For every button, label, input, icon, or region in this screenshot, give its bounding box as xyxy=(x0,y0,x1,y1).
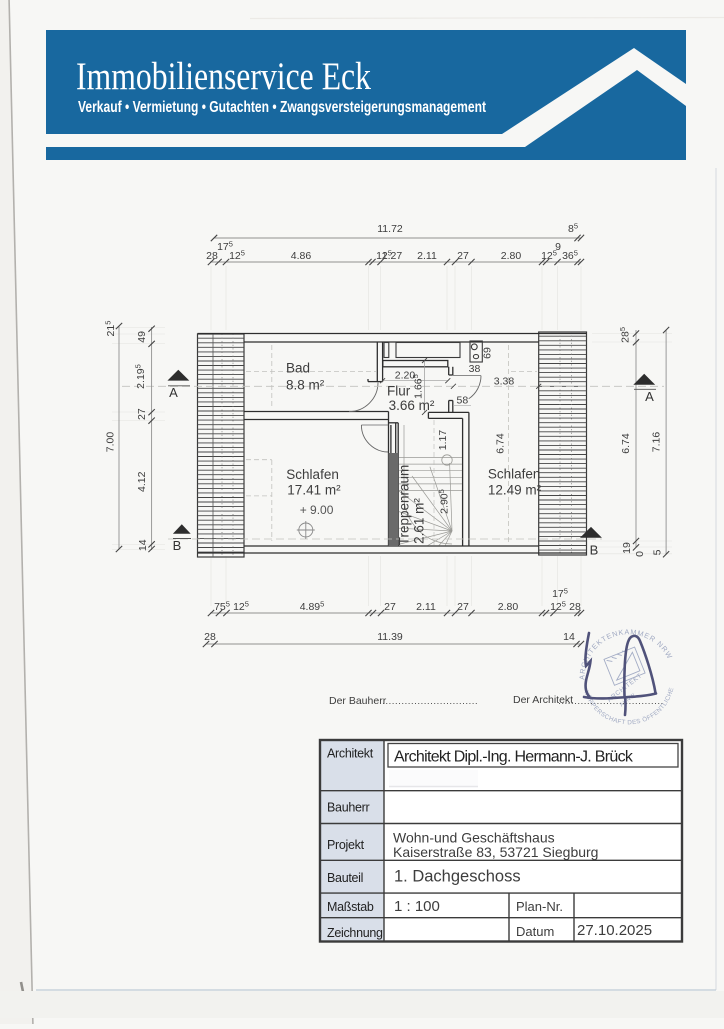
svg-text:Zeichnung: Zeichnung xyxy=(327,926,383,940)
svg-text:Flur: Flur xyxy=(387,383,411,398)
svg-text:Immobilienservice Eck: Immobilienservice Eck xyxy=(76,55,371,98)
svg-text:Datum: Datum xyxy=(516,924,554,939)
svg-text:Architekt: Architekt xyxy=(327,747,374,761)
svg-text:Bad: Bad xyxy=(286,361,310,376)
svg-text:9: 9 xyxy=(555,241,561,253)
svg-text:2.80: 2.80 xyxy=(498,601,519,613)
svg-text:Schlafen: Schlafen xyxy=(286,467,339,482)
svg-text:4.86: 4.86 xyxy=(291,250,312,262)
svg-text:Bauherr: Bauherr xyxy=(327,801,370,815)
svg-text:Verkauf • Vermietung • Gutacht: Verkauf • Vermietung • Gutachten • Zwang… xyxy=(78,99,487,116)
svg-text:Treppenraum: Treppenraum xyxy=(397,465,412,546)
svg-text:69: 69 xyxy=(482,347,494,359)
svg-text:6.74: 6.74 xyxy=(620,433,632,454)
svg-text:2.11: 2.11 xyxy=(417,250,437,262)
svg-text:27: 27 xyxy=(384,601,396,613)
svg-text:12.49 m²: 12.49 m² xyxy=(488,483,542,498)
svg-text:1 : 100: 1 : 100 xyxy=(394,898,440,915)
svg-text:7.00: 7.00 xyxy=(105,432,117,453)
svg-text:14: 14 xyxy=(563,631,575,643)
svg-text:28: 28 xyxy=(204,631,216,643)
svg-text:11.72: 11.72 xyxy=(377,223,403,235)
svg-text:Der Bauherr: Der Bauherr xyxy=(329,695,387,707)
svg-text:4.12: 4.12 xyxy=(136,471,148,492)
svg-text:1. Dachgeschoss: 1. Dachgeschoss xyxy=(394,868,521,886)
svg-text:38: 38 xyxy=(469,363,481,375)
svg-text:27: 27 xyxy=(136,408,148,420)
svg-text:8.8 m²: 8.8 m² xyxy=(286,378,325,393)
svg-text:2.61 m²: 2.61 m² xyxy=(412,498,427,544)
svg-text:Kaiserstraße 83, 53721 Siegbur: Kaiserstraße 83, 53721 Siegburg xyxy=(393,844,598,860)
svg-text:58: 58 xyxy=(457,395,469,407)
svg-text:2.11: 2.11 xyxy=(416,601,436,613)
svg-text:1.17: 1.17 xyxy=(437,430,449,451)
svg-text:Plan-Nr.: Plan-Nr. xyxy=(516,899,563,914)
svg-text:49: 49 xyxy=(136,331,148,343)
svg-text:A: A xyxy=(169,385,178,400)
svg-text:28: 28 xyxy=(569,601,581,613)
svg-text:3.38: 3.38 xyxy=(494,376,515,388)
svg-text:19: 19 xyxy=(621,542,633,554)
svg-text:11.39: 11.39 xyxy=(377,631,403,643)
svg-text:B: B xyxy=(173,538,182,553)
svg-text:27: 27 xyxy=(457,601,469,613)
svg-text:Maßstab: Maßstab xyxy=(327,900,374,914)
svg-text:Projekt: Projekt xyxy=(327,838,365,852)
svg-text:1.27: 1.27 xyxy=(382,250,403,262)
svg-text:5: 5 xyxy=(652,549,664,555)
svg-text:0: 0 xyxy=(634,551,646,557)
svg-text:27.10.2025: 27.10.2025 xyxy=(577,922,652,939)
svg-text:6.74: 6.74 xyxy=(495,433,507,454)
svg-text:2.80: 2.80 xyxy=(501,250,522,262)
svg-text:27: 27 xyxy=(457,250,469,262)
svg-text:Architekt Dipl.-Ing. Hermann-J: Architekt Dipl.-Ing. Hermann-J. Brück xyxy=(394,749,634,766)
svg-text:+ 9.00: + 9.00 xyxy=(300,503,334,517)
svg-text:A: A xyxy=(645,389,654,404)
svg-text:Bauteil: Bauteil xyxy=(327,871,363,885)
svg-text:3.66 m²: 3.66 m² xyxy=(389,398,435,413)
svg-text:17.41 m²: 17.41 m² xyxy=(287,483,341,498)
svg-text:Der Architekt: Der Architekt xyxy=(513,694,573,706)
svg-text:14: 14 xyxy=(137,539,149,551)
svg-text:Schlafen: Schlafen xyxy=(488,467,541,482)
svg-text:B: B xyxy=(590,543,599,558)
svg-text:7.16: 7.16 xyxy=(651,432,663,453)
